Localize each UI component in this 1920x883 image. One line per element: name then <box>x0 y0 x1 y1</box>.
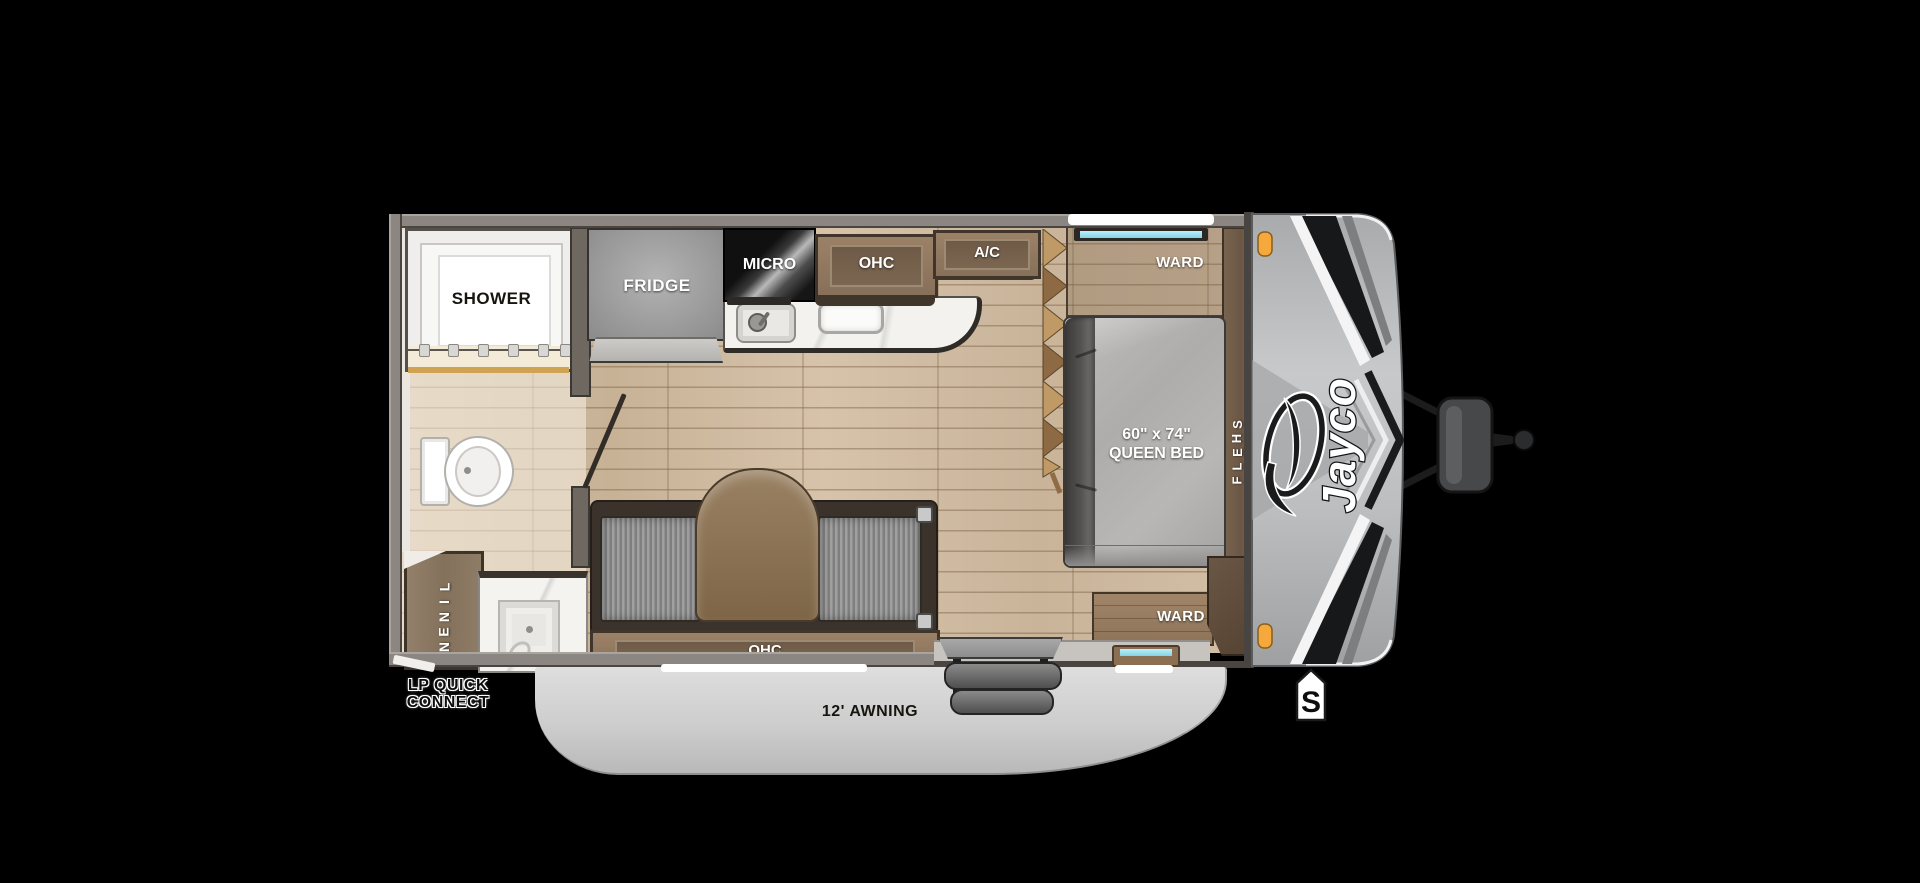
lp-line1: LP QUICK <box>383 677 513 694</box>
entry-step-platform <box>938 637 1063 659</box>
dinette-table <box>695 468 820 622</box>
cooktop-cover <box>818 302 884 334</box>
hitch-ball-icon <box>1514 430 1534 450</box>
marker-light-icon <box>1258 624 1272 648</box>
linen-label: LINEN <box>407 580 481 654</box>
ward-front-label: WARD <box>1130 254 1230 271</box>
curtain-hook <box>538 344 549 357</box>
spare-tire-letter: S <box>1301 686 1321 719</box>
toilet-bowl <box>444 436 514 507</box>
curtain-hook <box>508 344 519 357</box>
ac-label: A/C <box>936 244 1038 261</box>
bedroom-window-top <box>1068 214 1214 225</box>
dinette-cushion-left <box>600 516 700 622</box>
brand-logo: Jayco <box>1313 377 1365 512</box>
queen-bed: 60" x 74" QUEEN BED <box>1063 316 1226 568</box>
awning <box>535 667 1227 775</box>
bed-size-label: 60" x 74" <box>1089 426 1224 444</box>
kitchen-sink <box>736 303 796 343</box>
dinette-cushion-right <box>818 516 922 622</box>
hitch-icon <box>1398 392 1534 492</box>
air-conditioner: A/C <box>933 230 1041 279</box>
fridge-step <box>589 337 723 363</box>
curtain-hook <box>448 344 459 357</box>
curtain-hook <box>419 344 430 357</box>
wardrobe-front <box>1066 228 1224 318</box>
curtain-hook <box>478 344 489 357</box>
awning-rail <box>661 664 867 672</box>
wall-rear <box>389 214 402 666</box>
kitchen-ohc-label: OHC <box>818 255 935 273</box>
range-hood <box>727 297 791 305</box>
micro-label: MICRO <box>725 256 814 274</box>
entry-window <box>1112 645 1180 667</box>
spare-tire-marker: S <box>1297 670 1325 720</box>
entry-step <box>944 662 1062 690</box>
floorplan-stage: SHOWER LINEN FRIDGE MICRO <box>0 0 1920 883</box>
cushion-corner-cap <box>916 506 933 523</box>
entry-step <box>950 689 1054 715</box>
refrigerator: FRIDGE <box>587 228 727 341</box>
awning-label: 12' AWNING <box>795 703 945 721</box>
lp-quick-connect-label: LP QUICK CONNECT <box>383 677 513 711</box>
microwave: MICRO <box>723 228 816 302</box>
kitchen-overhead-cabinet: OHC <box>815 234 938 298</box>
lp-line2: CONNECT <box>383 694 513 711</box>
bedroom-window-glass-frame <box>1074 228 1208 241</box>
cushion-corner-cap <box>916 613 933 630</box>
front-cap: Jayco S <box>1240 200 1560 740</box>
bathroom-wall-stub <box>571 486 590 568</box>
shower-label: SHOWER <box>408 289 575 309</box>
marker-light-icon <box>1258 232 1272 256</box>
awning-rail <box>1115 665 1173 673</box>
bed-type-label: QUEEN BED <box>1089 445 1224 463</box>
fridge-label: FRIDGE <box>589 276 725 296</box>
